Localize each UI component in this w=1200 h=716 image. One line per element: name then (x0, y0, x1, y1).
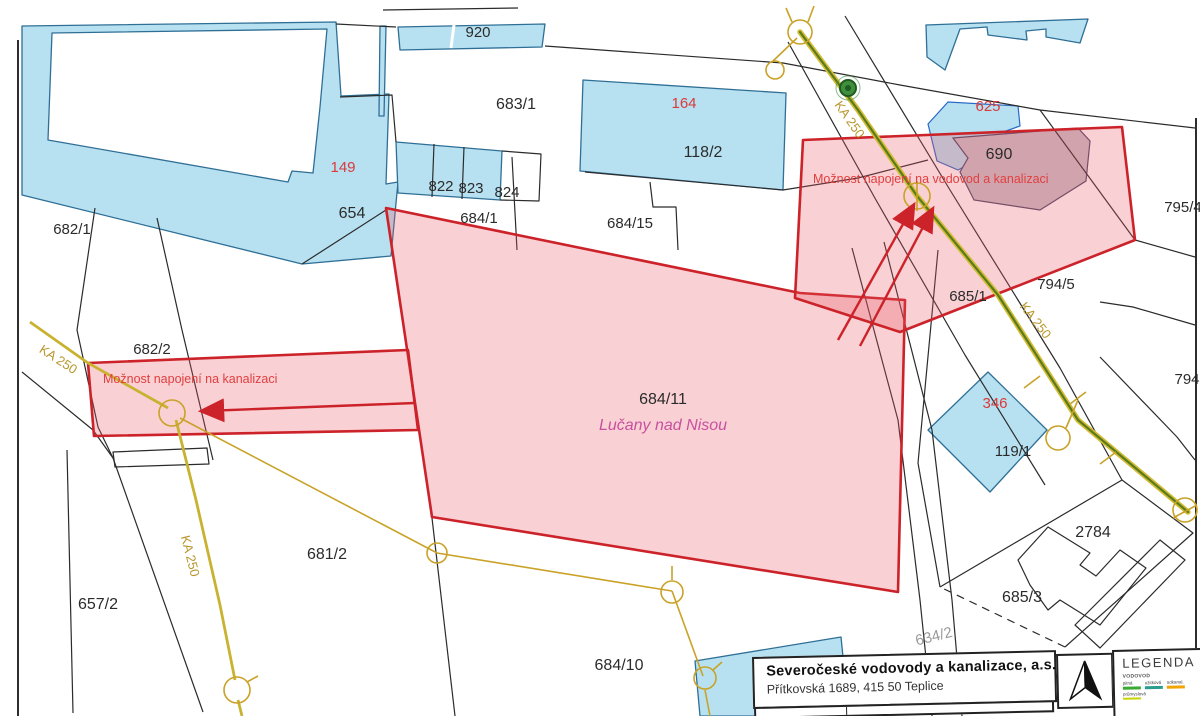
parcel-label: 164 (671, 95, 696, 112)
north-arrow-cell (1056, 653, 1114, 709)
parcel-label: 690 (986, 146, 1013, 163)
parcel-label: 119/1 (995, 443, 1031, 460)
parcel-label: 346 (982, 395, 1007, 412)
parcel-label: 795/4 (1164, 199, 1200, 216)
parcel-label: 684/11 (639, 391, 687, 408)
legend-box: LEGENDA VODOVOD pitnáužitkováodkanal.prů… (1112, 648, 1200, 716)
parcel-label: 684/10 (595, 657, 644, 674)
parcel-label: 634/2 (914, 624, 955, 650)
parcel-label: 682/1 (53, 221, 91, 238)
parcel-label: 2784 (1075, 524, 1111, 541)
legend-item: užitková (1145, 680, 1163, 689)
green-marker-dot (836, 76, 860, 100)
parcel-label: 685/1 (949, 288, 987, 305)
pipeline-label: KA 250 (178, 534, 203, 578)
parcel-label: 683/1 (496, 96, 536, 113)
parcel-label: 920 (465, 24, 490, 41)
north-arrow-icon (1058, 655, 1112, 707)
parcel-label: 685/3 (1002, 589, 1042, 606)
parcel-label: 149 (330, 159, 355, 176)
parcel-label: 824 (494, 184, 519, 201)
highlight-corridor-left (88, 350, 418, 436)
legend-item: pitná (1123, 680, 1141, 689)
parcel-label: 681/2 (307, 546, 347, 563)
parcel-label: 823 (458, 180, 483, 197)
parcel-346 (928, 372, 1047, 492)
parcel-label: 684/1 (460, 210, 498, 227)
parcel-top-right-step (926, 19, 1088, 70)
parcel-label: 794/5 (1037, 276, 1075, 293)
annotation-kanalizace: Možnost napojení na kanalizaci (103, 372, 277, 386)
parcel-label: 794 (1174, 371, 1199, 388)
annotation-vodovod: Možnost napojení na vodovod a kanalizaci (813, 172, 1049, 186)
parcel-label: 657/2 (78, 596, 118, 613)
legend-title: LEGENDA (1122, 654, 1200, 671)
parcel-label: 625 (975, 98, 1000, 115)
cadastral-map: 920683/1164118/2149654822823824684/1684/… (0, 0, 1200, 716)
parcel-label: 654 (339, 205, 366, 222)
legend-item: odkanal. (1167, 679, 1185, 688)
region-label: Lučany nad Nisou (599, 417, 727, 434)
cadastral-map-page: 920683/1164118/2149654822823824684/1684/… (0, 0, 1200, 716)
legend-items: pitnáužitkováodkanal.průmyslová (1123, 679, 1200, 700)
pipeline-label: KA 250 (37, 342, 80, 377)
legend-item: průmyslová (1123, 691, 1146, 700)
parcel-label: 682/2 (133, 341, 171, 358)
parcel-label: 118/2 (684, 144, 723, 161)
company-address: Přítkovská 1689, 415 50 Teplice (767, 676, 1055, 697)
parcel-label: 822 (428, 178, 453, 195)
parcel-label: 684/15 (607, 215, 653, 232)
parcel-sliver (379, 26, 386, 116)
